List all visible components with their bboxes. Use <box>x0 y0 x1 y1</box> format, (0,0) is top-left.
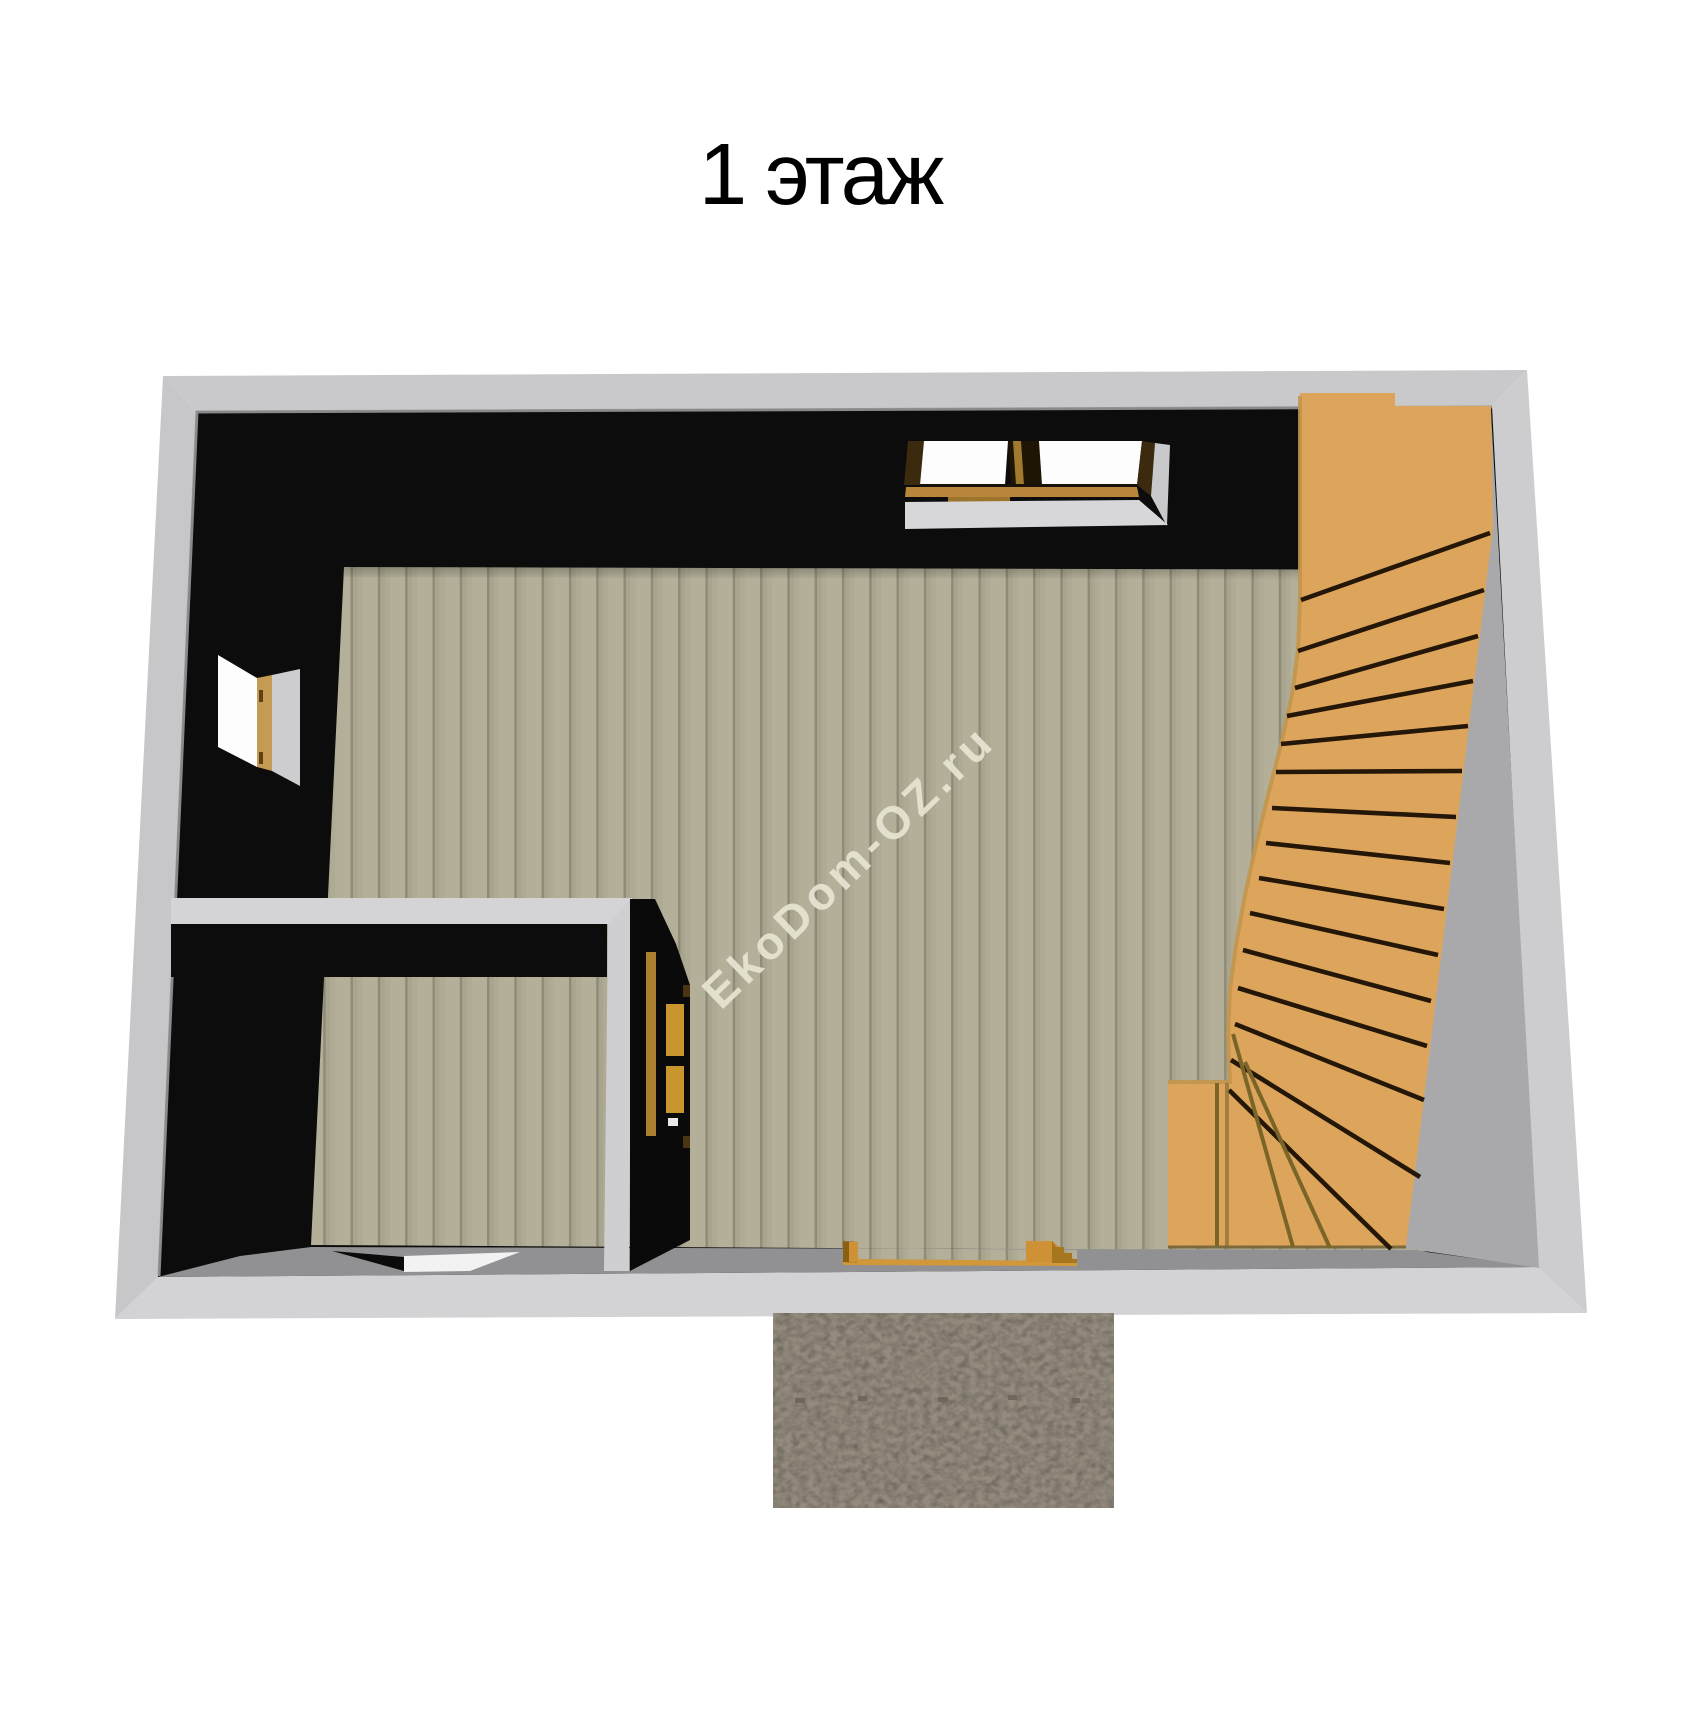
svg-text:1 этаж: 1 этаж <box>699 126 944 223</box>
